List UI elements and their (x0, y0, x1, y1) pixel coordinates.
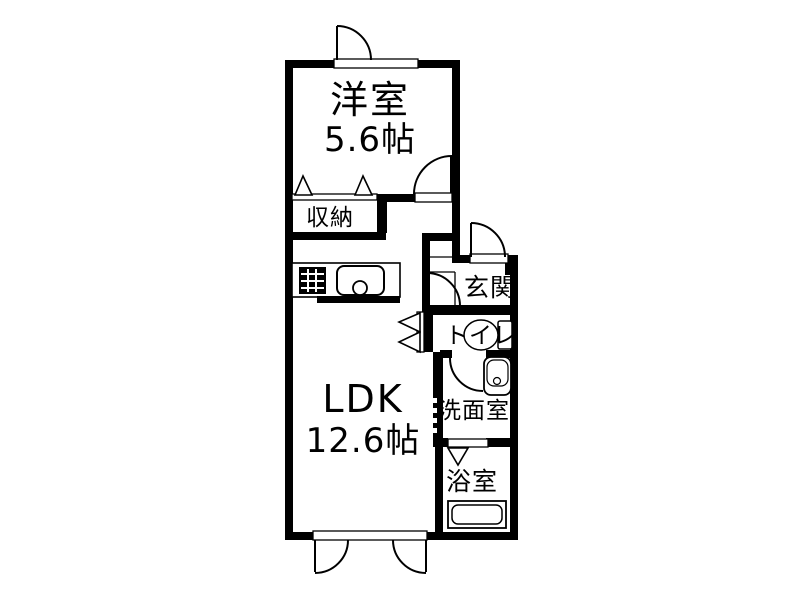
wall-left-outer (285, 60, 293, 540)
label-ldk: LDK (322, 377, 403, 421)
door-swing-icon (471, 223, 505, 257)
stove-icon (299, 267, 326, 294)
bath-folding-door-icon (448, 448, 468, 465)
label-western-room: 洋室 (330, 78, 410, 122)
bathtub-icon (448, 501, 506, 528)
door-swing-icon (414, 156, 452, 194)
kitchen-sink-icon (337, 266, 384, 295)
toilet-folding-door-icon (399, 332, 420, 352)
closet-folding-door-icon (295, 176, 312, 195)
genkan-step-lines (428, 257, 455, 305)
door-swing-icon (450, 358, 483, 391)
wall-closet-right (377, 194, 387, 233)
closet-folding-door-icon (355, 176, 372, 195)
floorplan-drawing: 洋室 5.6帖 収納 LDK 12.6帖 玄関 トイレ 洗面室 浴室 (0, 0, 800, 600)
kitchen-counter-base (317, 296, 400, 303)
threshold-bath-door (448, 439, 488, 447)
label-ldk-size: 12.6帖 (306, 421, 421, 461)
wall-washroom-bath-left (433, 438, 448, 447)
threshold-yoshitsu-top-door (334, 59, 418, 68)
label-entrance: 玄関 (464, 273, 516, 302)
wall-right-upper (452, 60, 460, 262)
threshold-genkan-door (470, 254, 508, 263)
kitchen-counter (292, 263, 400, 303)
wall-bathroom-left (435, 447, 443, 532)
label-closet: 収納 (306, 205, 354, 231)
threshold-yoshitsu-side-door (415, 193, 452, 202)
wall-right-outer-lower (510, 262, 518, 535)
label-washroom: 洗面室 (438, 398, 510, 424)
wall-genkan-top-jog (452, 255, 470, 263)
threshold-balcony-door (313, 531, 427, 540)
wall-top-left (285, 60, 334, 68)
label-toilet: トイレ (445, 323, 517, 349)
door-swing-icon (337, 26, 371, 60)
floorplan-page: 洋室 5.6帖 収納 LDK 12.6帖 玄関 トイレ 洗面室 浴室 (0, 0, 800, 600)
label-western-room-size: 5.6帖 (324, 120, 416, 160)
washbasin-icon (484, 357, 511, 395)
label-bathroom: 浴室 (446, 467, 498, 496)
toilet-folding-door-icon (399, 313, 420, 332)
wall-washroom-bath-right (486, 438, 518, 447)
double-door-swing-icon (315, 540, 426, 573)
wall-closet-bottom (285, 232, 386, 240)
wall-genkan-bottom (422, 305, 518, 315)
wall-yoshitsu-bottom (386, 194, 415, 202)
